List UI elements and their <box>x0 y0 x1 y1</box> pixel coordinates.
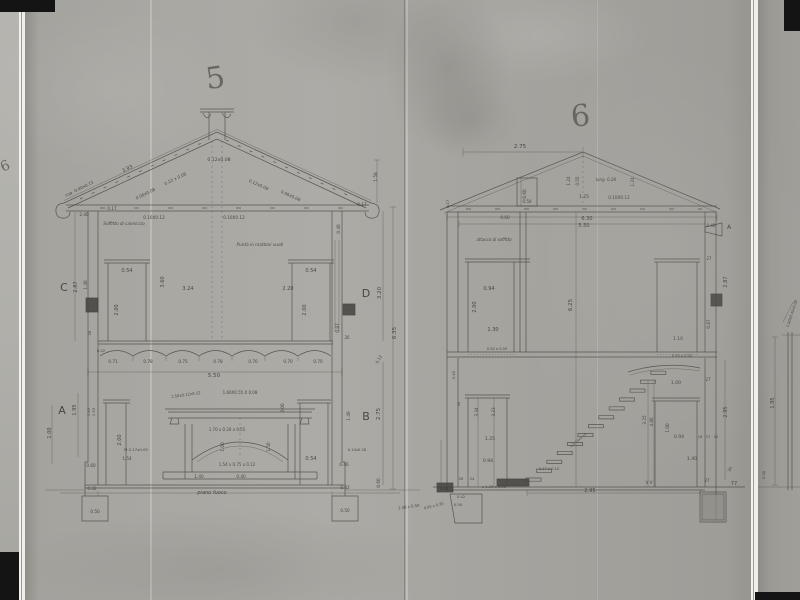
adjacent-sheet-right <box>758 0 800 600</box>
photo-black-corner-top-right <box>784 0 800 31</box>
adjacent-sheet-left <box>0 0 19 600</box>
photo-black-corner-bottom-right <box>755 592 800 600</box>
drawing-sheet <box>25 0 752 600</box>
photo-black-corner-top-left <box>0 0 55 12</box>
photo-of-architectural-drawing: 3.93cop. 0.40x0.150.12x0.080.12 x 0.080.… <box>0 0 800 600</box>
photo-black-corner-bottom-left <box>0 552 19 600</box>
page-gap-right <box>751 0 758 600</box>
